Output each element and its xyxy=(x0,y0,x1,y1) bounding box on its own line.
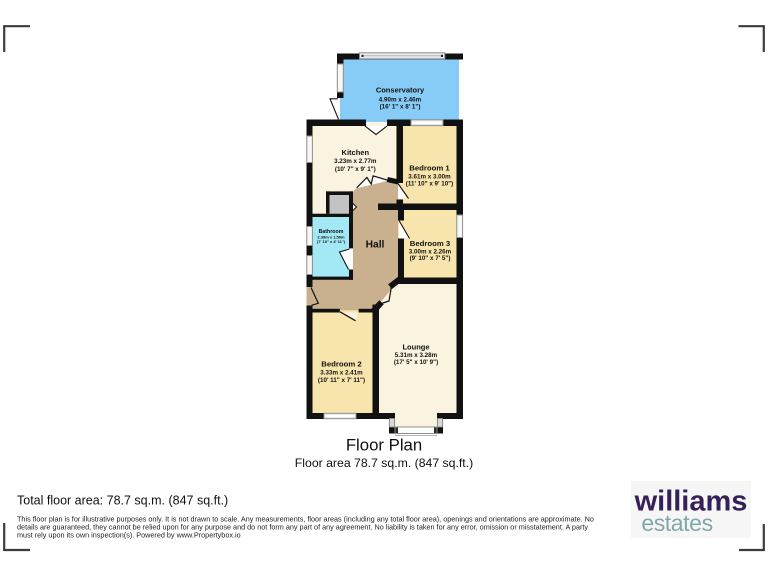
svg-text:Bedroom 3: Bedroom 3 xyxy=(410,239,451,248)
svg-text:Conservatory: Conservatory xyxy=(376,86,425,95)
svg-text:Kitchen: Kitchen xyxy=(342,148,370,157)
svg-text:Total floor area: 78.7 sq.m. (: Total floor area: 78.7 sq.m. (847 sq.ft.… xyxy=(17,494,228,508)
svg-text:(16' 1" x 8' 1"): (16' 1" x 8' 1") xyxy=(380,104,421,111)
svg-text:Hall: Hall xyxy=(366,240,385,251)
svg-text:Floor area 78.7 sq.m. (847 sq.: Floor area 78.7 sq.m. (847 sq.ft.) xyxy=(295,456,473,470)
svg-text:estates: estates xyxy=(641,510,712,536)
svg-text:Bedroom 2: Bedroom 2 xyxy=(321,359,361,368)
svg-text:(10' 11" x 7' 11"): (10' 11" x 7' 11") xyxy=(318,377,365,384)
svg-text:(11' 10" x 9' 10"): (11' 10" x 9' 10") xyxy=(406,180,453,187)
svg-text:3.23m x 2.77m: 3.23m x 2.77m xyxy=(334,158,377,165)
svg-text:(10' 7" x 9' 1"): (10' 7" x 9' 1") xyxy=(335,166,376,173)
svg-text:must rely upon its own inspect: must rely upon its own inspection(s). Po… xyxy=(17,530,241,539)
svg-text:Bedroom 1: Bedroom 1 xyxy=(409,164,450,173)
svg-text:(7' 10" x 4' 11"): (7' 10" x 4' 11") xyxy=(317,239,346,244)
svg-text:(17' 5" x 10' 9"): (17' 5" x 10' 9") xyxy=(394,359,438,366)
svg-text:3.33m x 2.41m: 3.33m x 2.41m xyxy=(320,370,363,377)
svg-text:4.90m x 2.46m: 4.90m x 2.46m xyxy=(379,97,422,104)
svg-text:Lounge: Lounge xyxy=(402,342,429,351)
svg-text:(9' 10" x 7' 5"): (9' 10" x 7' 5") xyxy=(410,255,451,262)
svg-text:Floor Plan: Floor Plan xyxy=(346,436,422,455)
